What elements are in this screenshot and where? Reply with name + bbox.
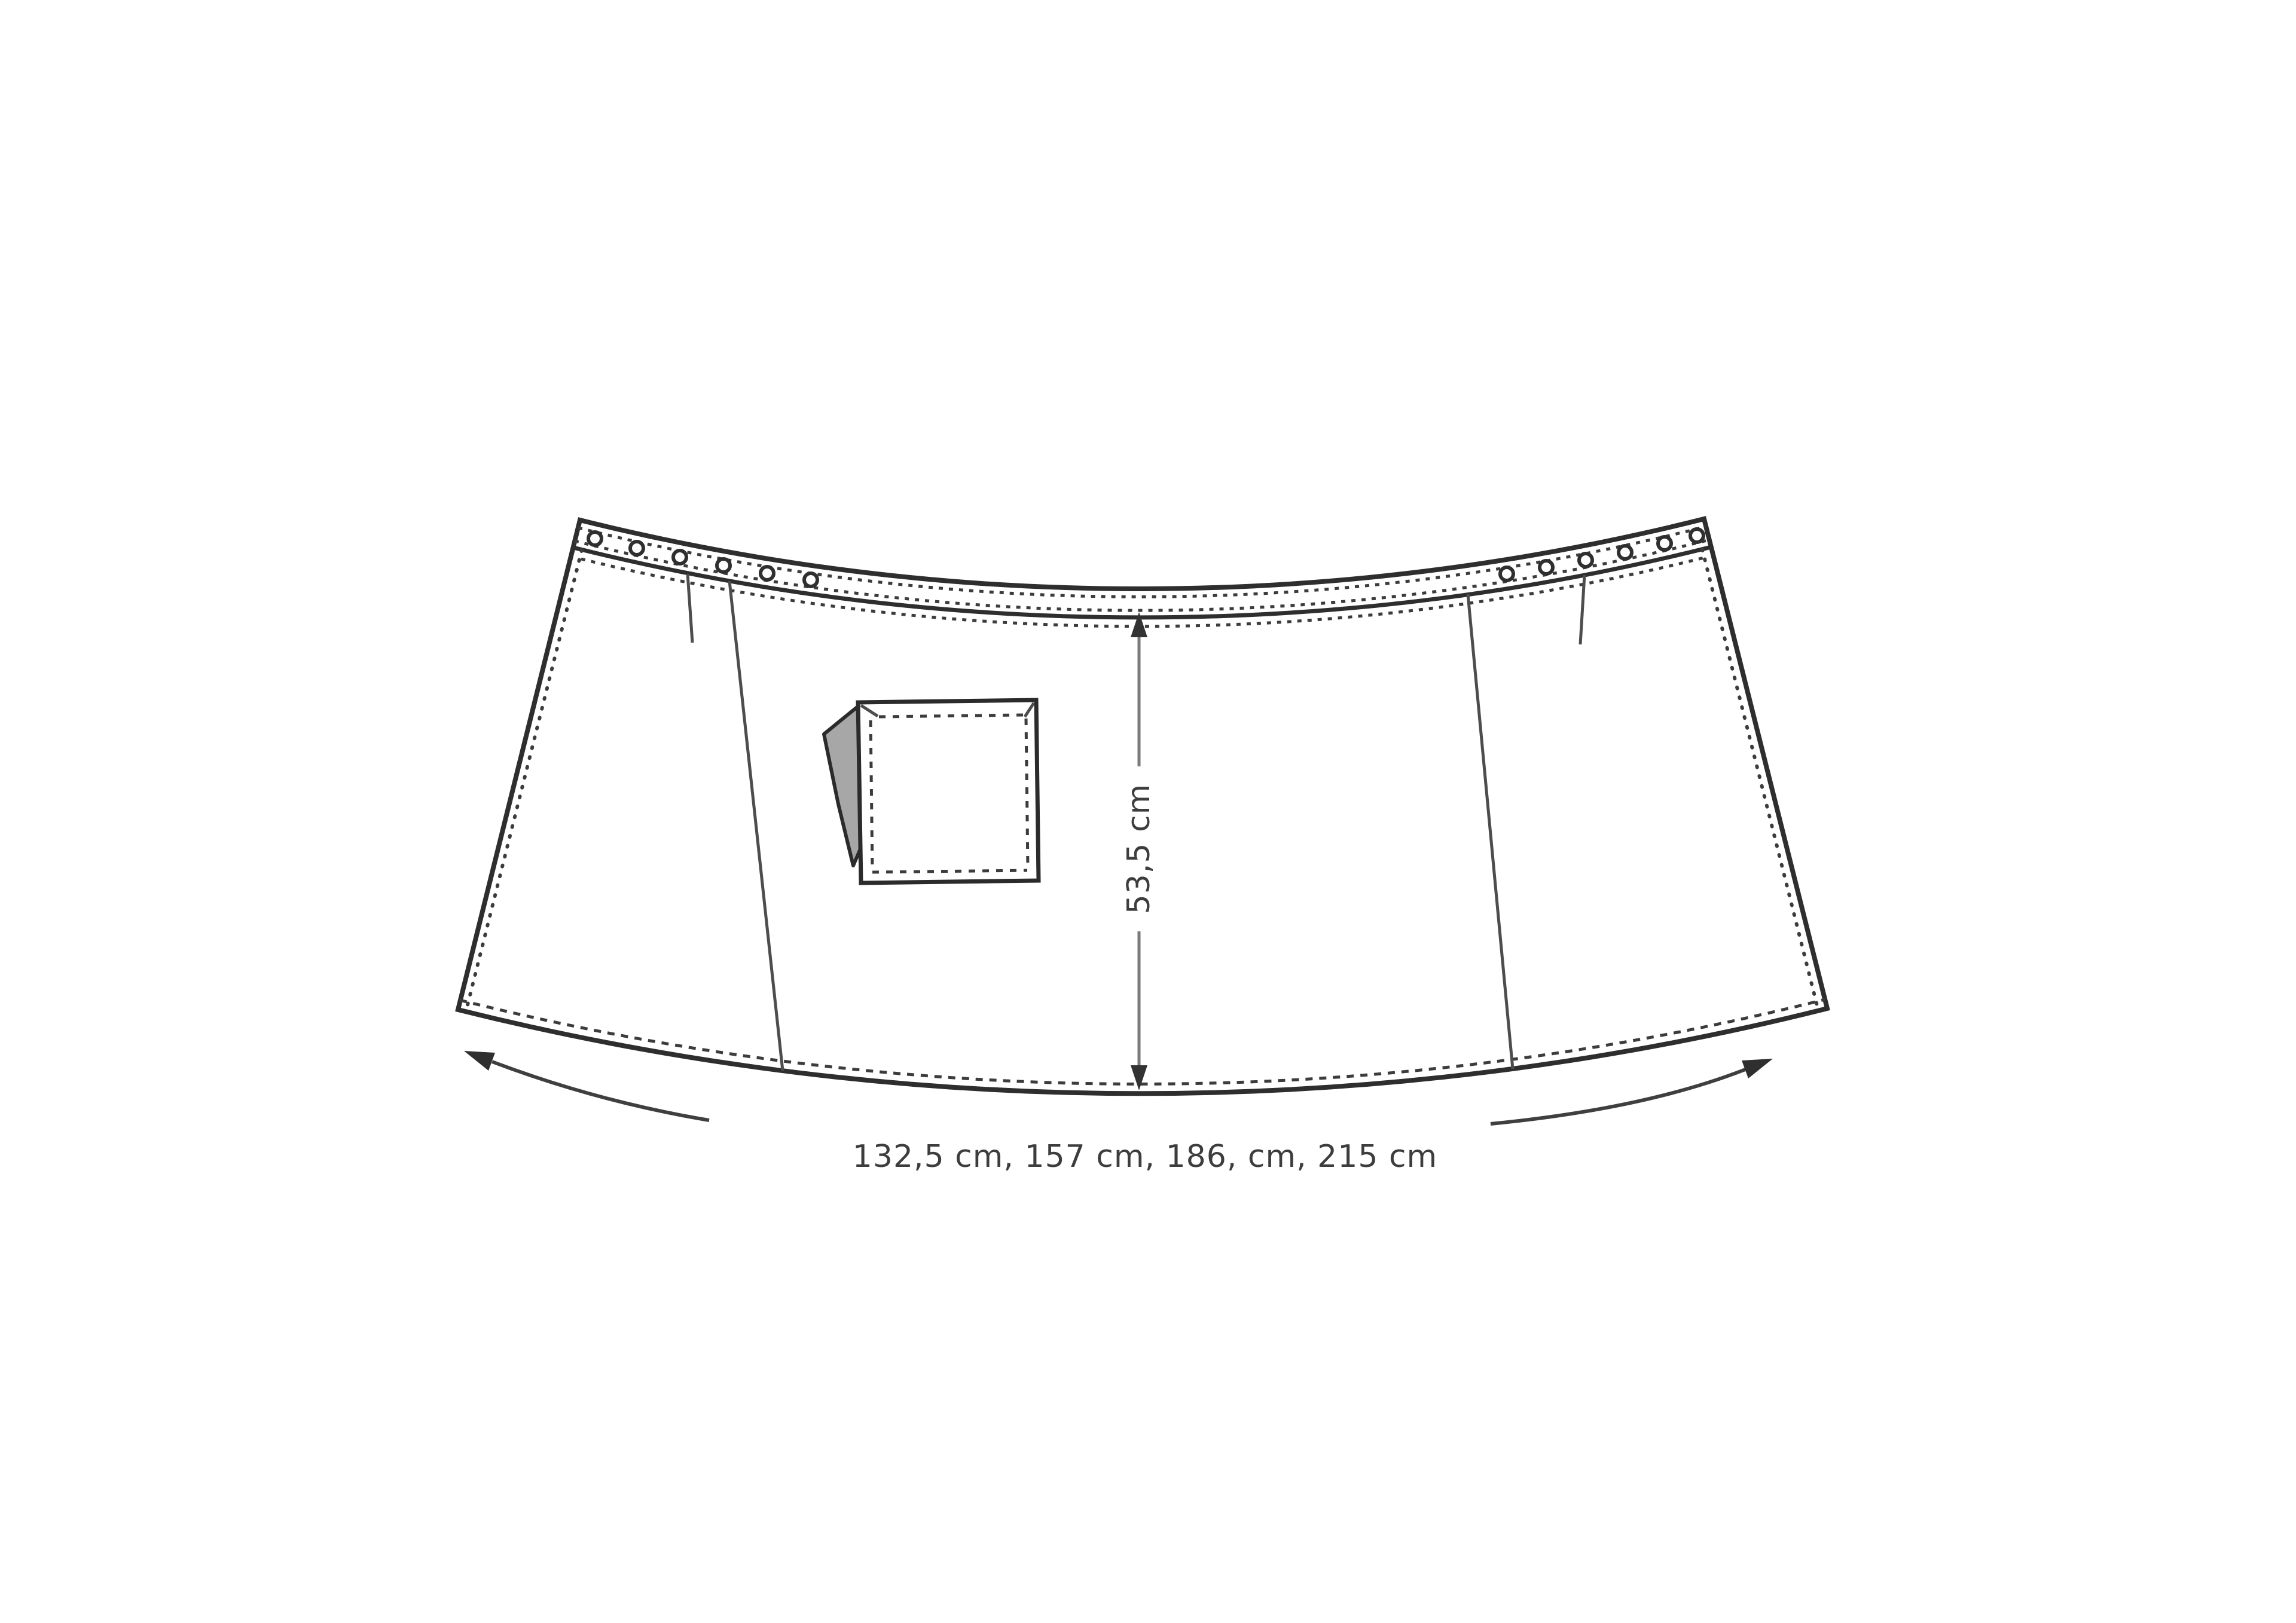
eyelet [804, 573, 817, 586]
pattern-diagram-canvas: 53,5 cm 132,5 cm, 157 cm, 186, cm, 215 c… [0, 0, 2296, 1623]
sewing-pattern-drawing: 53,5 cm 132,5 cm, 157 cm, 186, cm, 215 c… [0, 0, 2296, 1623]
eyelet [673, 551, 686, 564]
eyelet [1579, 554, 1592, 567]
eyelet [588, 532, 602, 545]
width-arrowhead-left-icon [464, 1051, 495, 1071]
pocket-body [858, 700, 1039, 883]
eyelet [630, 542, 643, 555]
width-dimension-label: 132,5 cm, 157 cm, 186, cm, 215 cm [853, 1139, 1437, 1175]
eyelet [1690, 529, 1703, 542]
eyelet [1658, 537, 1671, 550]
eyelet [1619, 546, 1632, 559]
width-arrow-left [492, 1062, 709, 1120]
width-arrowhead-right-icon [1742, 1059, 1773, 1078]
eyelet [1500, 567, 1513, 580]
height-dimension-label: 53,5 cm [1121, 784, 1157, 915]
patch-pocket [824, 700, 1039, 883]
width-arrow-right [1491, 1069, 1745, 1124]
eyelet [717, 559, 730, 572]
eyelet [1540, 561, 1553, 574]
eyelet [761, 567, 774, 580]
